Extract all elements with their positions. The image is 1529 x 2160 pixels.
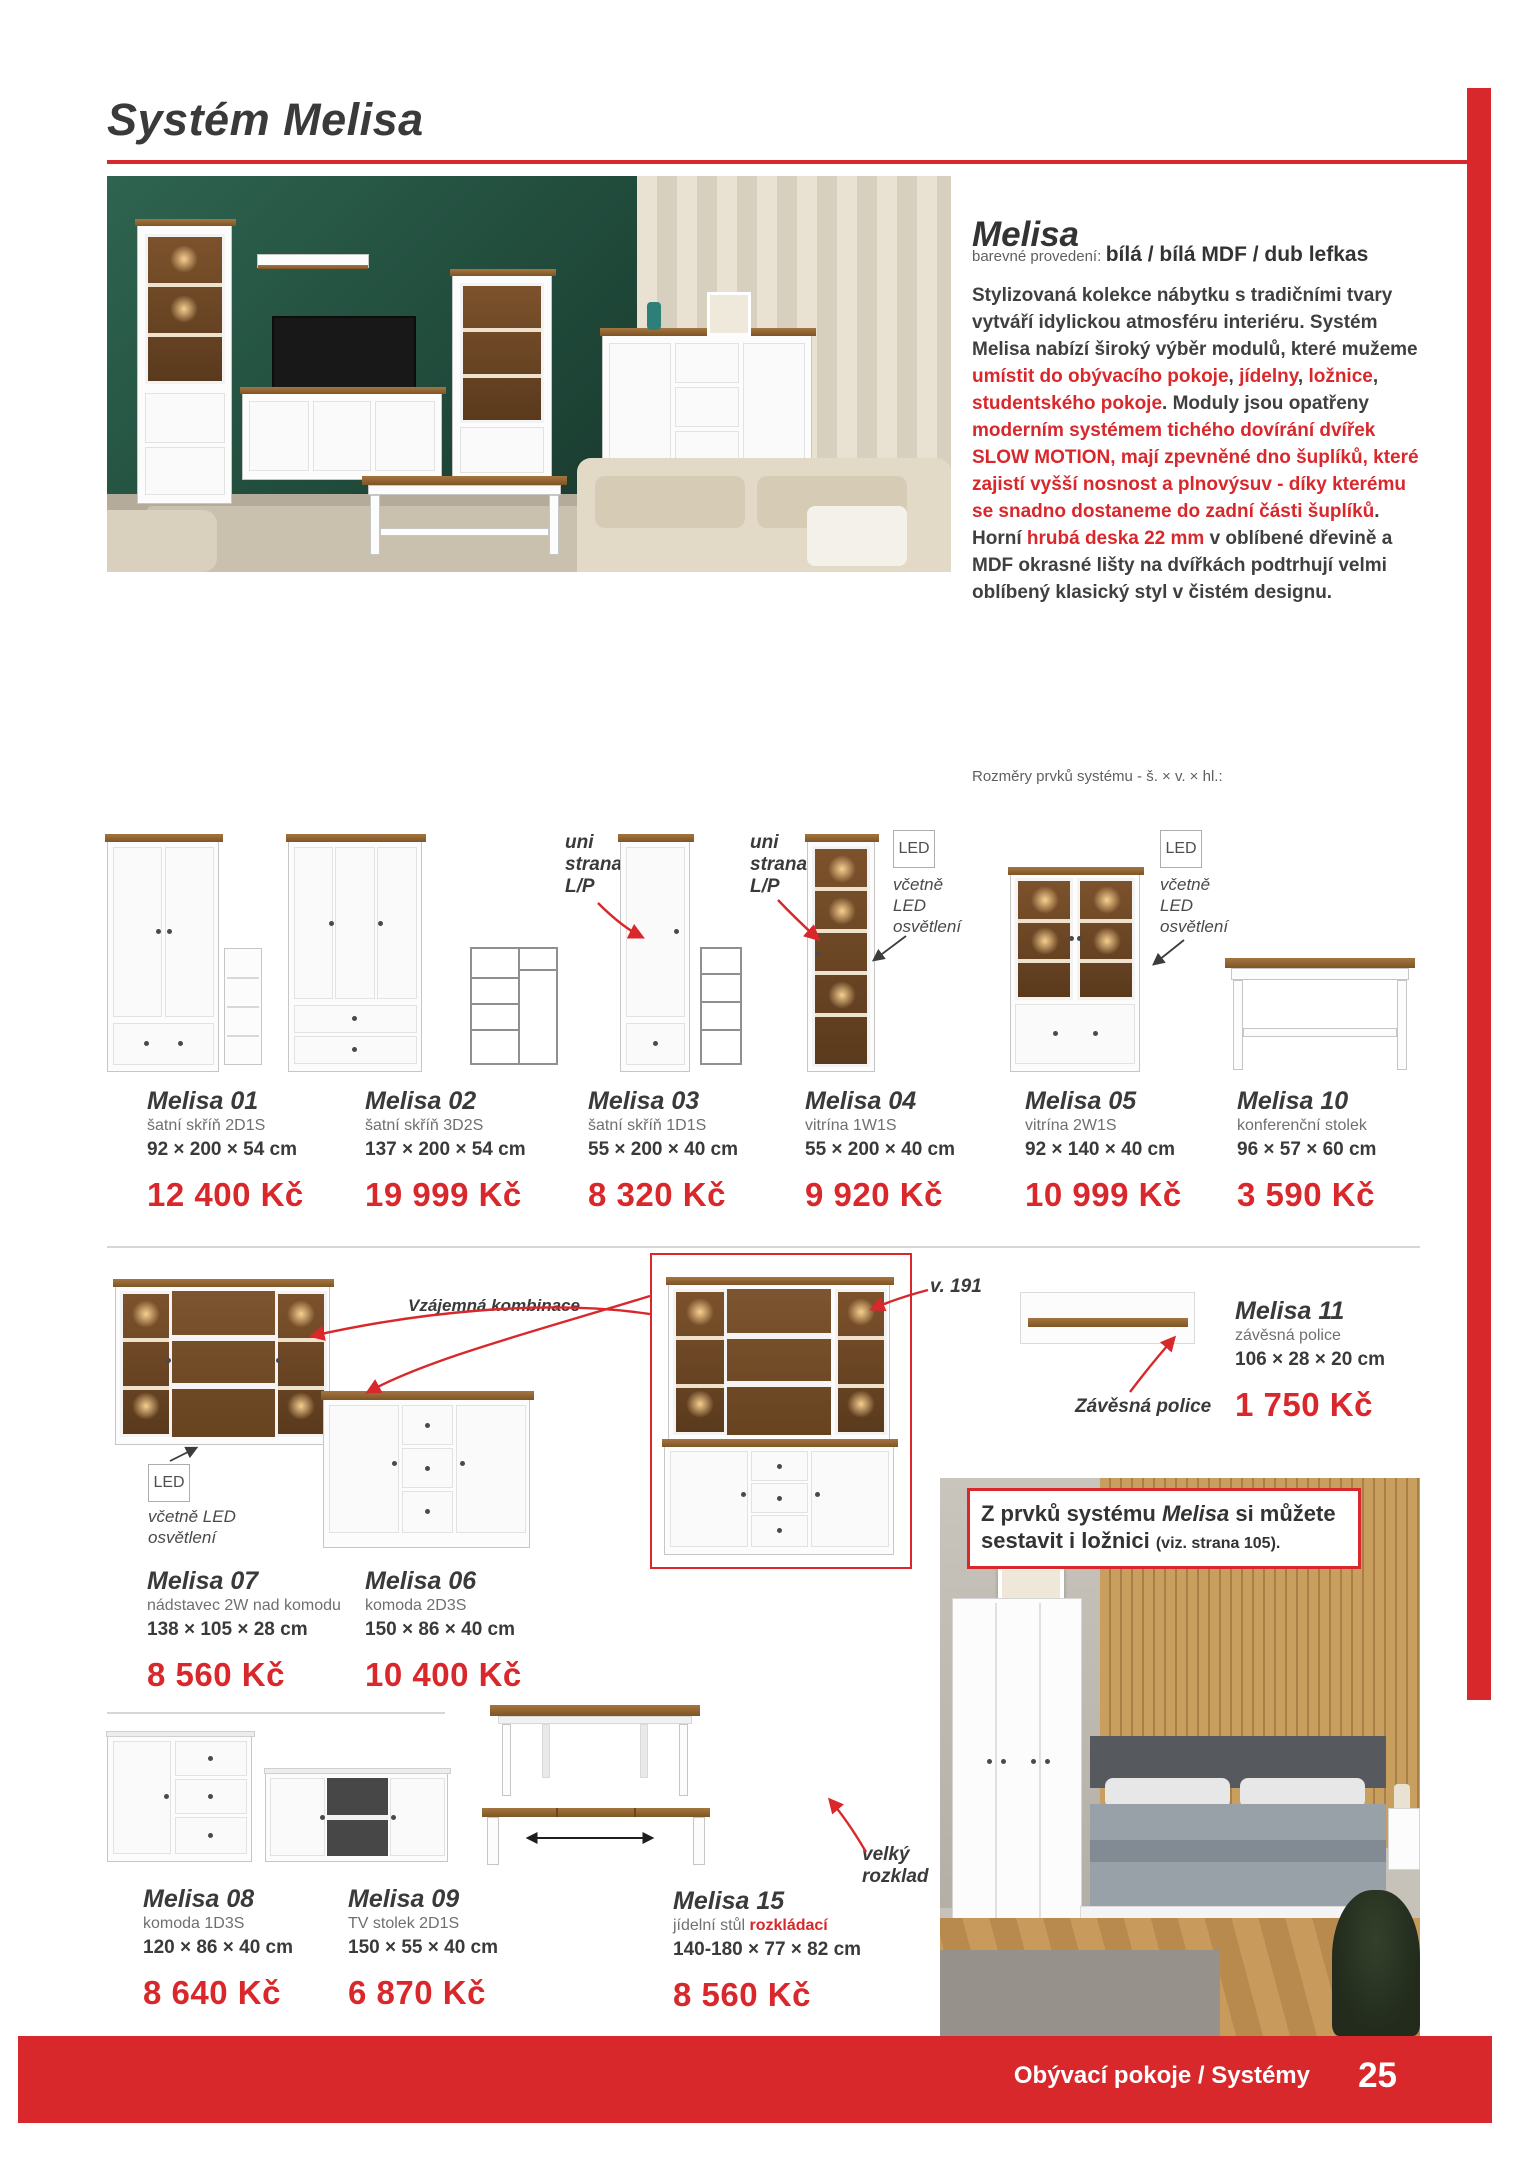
price: 12 400 Kč <box>147 1176 304 1214</box>
arrow-led-m04 <box>874 936 906 960</box>
price: 1 750 Kč <box>1235 1386 1385 1424</box>
product-image-melisa-10 <box>1225 958 1415 1072</box>
title-rule <box>107 160 1467 164</box>
footer-section-label: Obývací pokoje / Systémy <box>1014 2062 1310 2090</box>
photo-wall-shelf <box>257 254 369 268</box>
dimensions-note: Rozměry prvků systému - š. × v. × hl.: <box>972 768 1223 785</box>
price: 8 560 Kč <box>147 1656 341 1694</box>
combination-outline-box <box>650 1253 912 1569</box>
photo-display-cabinet <box>137 224 232 504</box>
photo-wardrobe <box>952 1598 1082 1928</box>
product-image-melisa-05 <box>1010 873 1140 1072</box>
product-card-melisa-07: Melisa 07 nádstavec 2W nad komodu 138 × … <box>147 1568 341 1694</box>
arrow-led-m07 <box>170 1448 196 1461</box>
page-title: Systém Melisa <box>107 94 424 146</box>
annotation-combination: Vzájemná kombinace <box>408 1295 580 1317</box>
product-card-melisa-02: Melisa 02 šatní skříň 3D2S 137 × 200 × 5… <box>365 1088 526 1214</box>
footer-bar: Obývací pokoje / Systémy 25 <box>18 2036 1492 2123</box>
photo-tv <box>272 316 416 394</box>
product-image-melisa-15-closed <box>490 1705 700 1797</box>
product-image-melisa-06 <box>323 1398 530 1548</box>
bedroom-promo-box: Z prvků systému Melisa si můžete sestavi… <box>967 1488 1361 1569</box>
photo-coffee-table <box>362 476 567 558</box>
product-card-melisa-01: Melisa 01 šatní skříň 2D1S 92 × 200 × 54… <box>147 1088 304 1214</box>
price: 8 320 Kč <box>588 1176 738 1214</box>
product-card-melisa-10: Melisa 10 konferenční stolek 96 × 57 × 6… <box>1237 1088 1376 1214</box>
interior-unit-melisa-01 <box>224 948 262 1065</box>
price: 8 560 Kč <box>673 1976 861 2014</box>
product-card-melisa-06: Melisa 06 komoda 2D3S 150 × 86 × 40 cm 1… <box>365 1568 522 1694</box>
photo-throw <box>807 506 907 566</box>
price: 3 590 Kč <box>1237 1176 1376 1214</box>
collection-description: Stylizovaná kolekce nábytku s tradičními… <box>972 282 1424 606</box>
price: 8 640 Kč <box>143 1974 293 2012</box>
product-card-melisa-03: Melisa 03 šatní skříň 1D1S 55 × 200 × 40… <box>588 1088 738 1214</box>
product-card-melisa-11: Melisa 11 závěsná police 106 × 28 × 20 c… <box>1235 1298 1385 1424</box>
living-room-photo <box>107 176 951 572</box>
photo-vase <box>647 302 661 330</box>
product-image-melisa-07 <box>115 1285 330 1445</box>
photo-plant <box>1332 1890 1420 2036</box>
melisa-11-shelf-board <box>1028 1318 1188 1327</box>
price: 6 870 Kč <box>348 1974 498 2012</box>
arrow-hanging-shelf <box>1130 1338 1174 1392</box>
annotation-height: v. 191 <box>930 1276 982 1298</box>
product-card-melisa-15: Melisa 15 jídelní stůl rozkládací 140-18… <box>673 1888 861 2014</box>
photo-tv-board <box>242 392 442 480</box>
interior-diagram-melisa-02 <box>470 947 558 1065</box>
product-image-melisa-03 <box>620 840 690 1072</box>
side-accent-bar <box>1467 88 1491 1700</box>
led-note-m04: včetně LED osvětlení <box>893 874 975 937</box>
product-image-melisa-09 <box>265 1772 448 1862</box>
color-variants-label: barevné provedení: <box>972 248 1101 265</box>
arrow-table-extend <box>830 1800 866 1852</box>
led-note-m07: včetně LED osvětlení <box>148 1506 268 1548</box>
photo-rug <box>940 1950 1220 2036</box>
annotation-hanging-shelf: Závěsná police <box>1075 1396 1211 1418</box>
price: 19 999 Kč <box>365 1176 526 1214</box>
product-image-melisa-02 <box>288 840 422 1072</box>
color-variants-value: bílá / bílá MDF / dub lefkas <box>1106 243 1369 266</box>
photo-nightstand <box>1388 1808 1420 1870</box>
product-image-melisa-15-extended <box>482 1808 710 1866</box>
photo-frame <box>707 292 751 336</box>
price: 10 999 Kč <box>1025 1176 1182 1214</box>
led-note-m05: včetně LED osvětlení <box>1160 874 1242 937</box>
product-card-melisa-09: Melisa 09 TV stolek 2D1S 150 × 55 × 40 c… <box>348 1886 498 2012</box>
product-card-melisa-04: Melisa 04 vitrína 1W1S 55 × 200 × 40 cm … <box>805 1088 955 1214</box>
product-card-melisa-08: Melisa 08 komoda 1D3S 120 × 86 × 40 cm 8… <box>143 1886 293 2012</box>
photo-vitrine <box>452 274 552 480</box>
interior-diagram-melisa-03 <box>700 947 742 1065</box>
led-badge-m04: LED <box>893 830 935 868</box>
price: 10 400 Kč <box>365 1656 522 1694</box>
photo-lamp <box>1394 1784 1410 1808</box>
product-image-melisa-01 <box>107 840 219 1072</box>
photo-pouf <box>107 510 217 572</box>
annotation-table-extend: velký rozklad <box>862 1844 956 1888</box>
product-image-melisa-04 <box>807 840 875 1072</box>
price: 9 920 Kč <box>805 1176 955 1214</box>
led-badge-m05: LED <box>1160 830 1202 868</box>
color-variants-line: barevné provedení: bílá / bílá MDF / dub… <box>972 243 1368 267</box>
arrow-led-m05 <box>1154 940 1184 964</box>
led-badge-m07: LED <box>148 1464 190 1502</box>
section-divider-1 <box>107 1246 1420 1248</box>
section-divider-2 <box>107 1712 445 1714</box>
product-card-melisa-05: Melisa 05 vitrína 2W1S 92 × 140 × 40 cm … <box>1025 1088 1182 1214</box>
page-number: 25 <box>1358 2056 1397 2096</box>
product-image-melisa-08 <box>107 1735 252 1862</box>
